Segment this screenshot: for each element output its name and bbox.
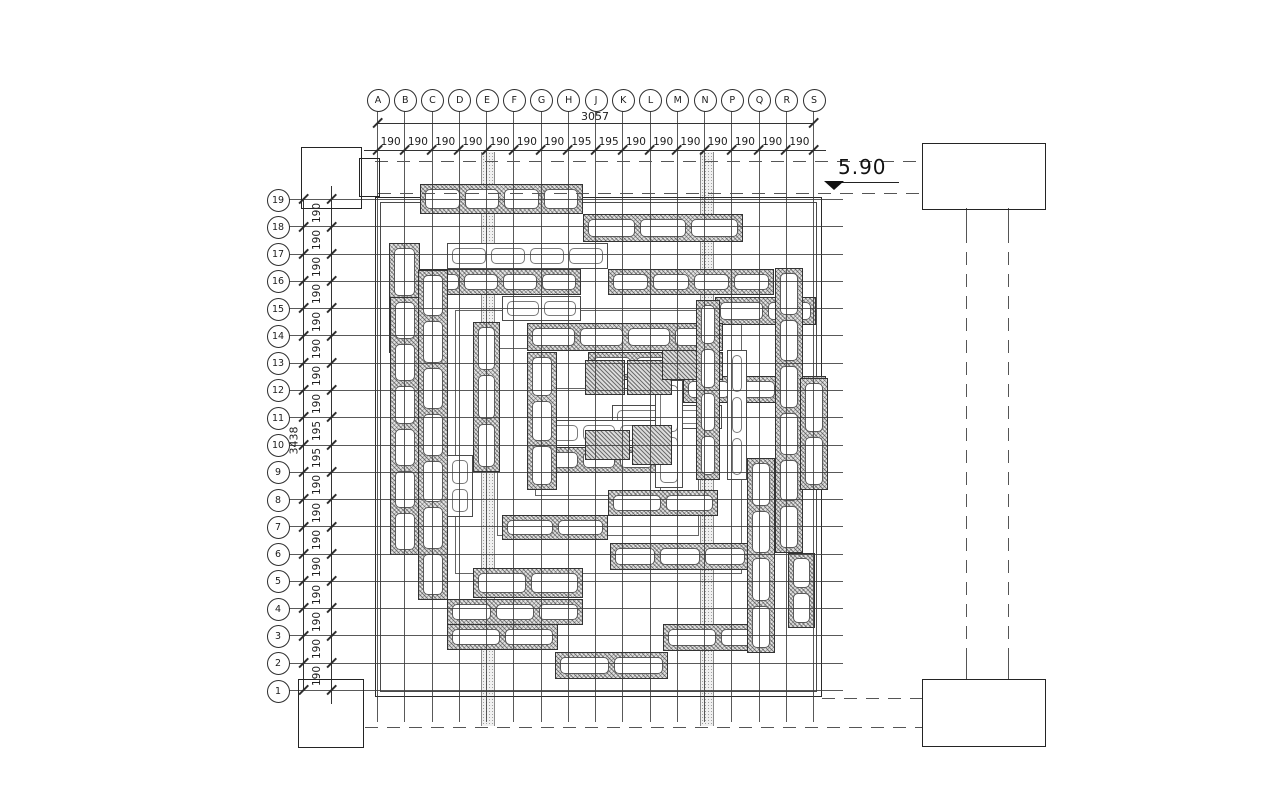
grid-line-3 <box>288 635 843 636</box>
stone-block <box>558 520 604 535</box>
stub-line-1 <box>1008 208 1009 232</box>
grid-bubble-left-19: 19 <box>267 189 290 212</box>
grid-bubble-top-R: R <box>775 89 798 112</box>
grid-line-15 <box>288 308 843 309</box>
dim-segment-left-12: 190 <box>311 525 323 555</box>
grid-line-Q <box>759 110 760 722</box>
stone-block <box>452 489 468 513</box>
grid-bubble-top-G: G <box>530 89 553 112</box>
grid-bubble-top-F: F <box>503 89 526 112</box>
masonry-strip-26 <box>527 352 557 490</box>
stone-block <box>613 495 661 511</box>
stone-block <box>542 274 576 290</box>
grid-line-B <box>404 110 405 722</box>
stone-block <box>539 604 578 620</box>
stone-block <box>720 302 763 320</box>
dim-segment-left-4: 190 <box>311 307 323 337</box>
masonry-strip-33 <box>788 553 815 628</box>
dim-segment-left-7: 190 <box>311 389 323 419</box>
grid-bubble-left-11: 11 <box>267 407 290 430</box>
stone-block <box>423 554 443 595</box>
stone-block <box>464 274 498 290</box>
masonry-strip-23 <box>418 270 448 600</box>
stone-block <box>423 507 443 548</box>
grid-bubble-left-8: 8 <box>267 489 290 512</box>
stone-block <box>530 248 564 264</box>
corner-column-bottom-left <box>298 679 364 748</box>
dim-segment-left-5: 190 <box>311 334 323 364</box>
grid-line-F <box>513 110 514 722</box>
corner-column-top-right <box>922 143 1046 210</box>
dim-segment-left-3: 190 <box>311 279 323 309</box>
grid-line-18 <box>288 226 843 227</box>
dim-segment-left-8: 195 <box>311 416 323 446</box>
stone-block <box>734 274 769 290</box>
grid-line-E <box>486 110 487 722</box>
grid-bubble-left-14: 14 <box>267 325 290 348</box>
grid-line-S <box>813 110 814 722</box>
grid-bubble-left-1: 1 <box>267 680 290 703</box>
stone-block <box>752 511 770 554</box>
grid-line-11 <box>288 417 843 418</box>
stone-block <box>491 248 525 264</box>
grid-bubble-top-B: B <box>394 89 417 112</box>
elevation-triangle-icon <box>824 181 844 190</box>
dim-segment-left-14: 190 <box>311 580 323 610</box>
grid-bubble-top-N: N <box>694 89 717 112</box>
grid-bubble-top-P: P <box>721 89 744 112</box>
grid-bubble-top-L: L <box>639 89 662 112</box>
grid-bubble-left-12: 12 <box>267 379 290 402</box>
elevation-value: 5.90 <box>838 155 887 179</box>
dim-segment-top-6: 190 <box>539 136 569 148</box>
grid-line-K <box>622 110 623 722</box>
grid-line-12 <box>288 390 843 391</box>
stone-block <box>793 558 810 588</box>
grid-bubble-top-D: D <box>448 89 471 112</box>
dim-segment-top-3: 190 <box>457 136 487 148</box>
grid-line-2 <box>288 663 843 664</box>
grid-line-19 <box>288 199 843 200</box>
stone-block <box>653 274 688 290</box>
grid-line-R <box>786 110 787 722</box>
dim-segment-top-9: 190 <box>621 136 651 148</box>
masonry-strip-4 <box>608 269 774 295</box>
dim-segment-left-2: 190 <box>311 252 323 282</box>
dim-segment-top-13: 190 <box>730 136 760 148</box>
grid-bubble-top-H: H <box>557 89 580 112</box>
dim-segment-left-13: 190 <box>311 552 323 582</box>
stone-block <box>732 397 742 434</box>
stone-block <box>503 274 537 290</box>
grid-line-10 <box>288 445 843 446</box>
stone-block <box>423 461 443 502</box>
masonry-strip-32 <box>800 378 828 490</box>
stone-block <box>780 320 798 362</box>
grid-line-L <box>650 110 651 722</box>
stone-block <box>752 558 770 601</box>
grid-line-13 <box>288 363 843 364</box>
dashed-line-2 <box>822 698 922 699</box>
grid-bubble-left-18: 18 <box>267 216 290 239</box>
masonry-strip-2 <box>447 243 608 269</box>
grid-line-9 <box>288 472 843 473</box>
dim-segment-top-7: 195 <box>566 136 596 148</box>
grid-bubble-top-M: M <box>666 89 689 112</box>
grid-line-J <box>595 110 596 722</box>
core-block-4 <box>662 350 697 380</box>
stone-block <box>752 606 770 649</box>
masonry-strip-7 <box>527 323 723 351</box>
grid-bubble-left-2: 2 <box>267 652 290 675</box>
stone-block <box>569 248 603 264</box>
grid-bubble-top-K: K <box>612 89 635 112</box>
dim-segment-top-15: 190 <box>784 136 814 148</box>
grid-bubble-left-10: 10 <box>267 434 290 457</box>
stub-line-0 <box>966 208 967 232</box>
stone-block <box>613 274 648 290</box>
dim-segment-left-10: 190 <box>311 470 323 500</box>
grid-bubble-top-S: S <box>803 89 826 112</box>
stone-block <box>780 413 798 455</box>
masonry-strip-16 <box>447 599 583 625</box>
stone-block <box>496 604 535 620</box>
masonry-strip-12 <box>608 490 718 516</box>
stone-block <box>532 401 552 440</box>
stone-block <box>532 446 552 485</box>
dim-segment-top-4: 190 <box>485 136 515 148</box>
dim-segment-top-8: 195 <box>594 136 624 148</box>
grid-line-7 <box>288 526 843 527</box>
masonry-strip-1 <box>583 214 743 242</box>
dim-segment-left-15: 190 <box>311 607 323 637</box>
dim-segment-left-16: 190 <box>311 634 323 664</box>
dashed-line-5 <box>1008 230 1009 660</box>
grid-bubble-left-16: 16 <box>267 270 290 293</box>
grid-bubble-top-E: E <box>476 89 499 112</box>
grid-bubble-top-J: J <box>585 89 608 112</box>
grid-line-H <box>568 110 569 722</box>
grid-bubble-left-5: 5 <box>267 570 290 593</box>
grid-bubble-top-Q: Q <box>748 89 771 112</box>
structural-plan-drawing: ABCDEFGHJKLMNPQRS19181716151413121110987… <box>0 0 1280 798</box>
grid-bubble-left-4: 4 <box>267 598 290 621</box>
masonry-strip-24 <box>447 455 473 517</box>
grid-bubble-left-7: 7 <box>267 516 290 539</box>
stone-block <box>666 495 714 511</box>
grid-bubble-left-9: 9 <box>267 461 290 484</box>
masonry-strip-19 <box>555 652 668 679</box>
dim-segment-top-10: 190 <box>648 136 678 148</box>
stone-block <box>452 248 486 264</box>
masonry-strip-15 <box>473 568 583 598</box>
grid-bubble-left-17: 17 <box>267 243 290 266</box>
stone-block <box>580 328 623 346</box>
grid-line-M <box>677 110 678 722</box>
stone-block <box>423 321 443 362</box>
masonry-strip-30 <box>747 458 775 653</box>
stone-block <box>423 368 443 409</box>
grid-line-P <box>731 110 732 722</box>
grid-line-14 <box>288 335 843 336</box>
stone-block <box>640 219 687 237</box>
stone-block <box>423 414 443 455</box>
grid-line-D <box>459 110 460 722</box>
dashed-line-4 <box>966 230 967 660</box>
stone-block <box>780 460 798 502</box>
grid-bubble-left-13: 13 <box>267 352 290 375</box>
stone-block <box>660 548 700 565</box>
dim-segment-top-5: 190 <box>512 136 542 148</box>
grid-line-4 <box>288 608 843 609</box>
stub-line-3 <box>1008 657 1009 679</box>
masonry-strip-29 <box>727 350 747 480</box>
grid-bubble-left-3: 3 <box>267 625 290 648</box>
grid-bubble-top-A: A <box>367 89 390 112</box>
masonry-strip-13 <box>502 515 608 540</box>
grid-bubble-left-6: 6 <box>267 543 290 566</box>
top-total-dimension: 3057 <box>565 110 625 123</box>
stone-block <box>705 548 745 565</box>
grid-line-1 <box>288 690 843 691</box>
dim-segment-top-12: 190 <box>703 136 733 148</box>
stone-block <box>668 629 716 646</box>
dashed-line-3 <box>365 727 922 728</box>
dim-segment-top-0: 190 <box>376 136 406 148</box>
stub-line-2 <box>966 657 967 679</box>
dashed-line-1 <box>378 193 922 194</box>
masonry-strip-31 <box>775 268 803 553</box>
grid-line-N <box>704 110 705 722</box>
stone-block <box>505 629 553 645</box>
stone-block <box>531 573 579 593</box>
grid-bubble-left-15: 15 <box>267 298 290 321</box>
dim-segment-top-11: 190 <box>675 136 705 148</box>
grid-line-G <box>541 110 542 722</box>
dim-segment-left-9: 195 <box>311 443 323 473</box>
grid-line-8 <box>288 499 843 500</box>
dim-segment-top-2: 190 <box>430 136 460 148</box>
grid-line-16 <box>288 281 843 282</box>
dim-segment-top-14: 190 <box>757 136 787 148</box>
dim-segment-left-11: 190 <box>311 498 323 528</box>
grid-bubble-top-C: C <box>421 89 444 112</box>
dim-segment-left-1: 190 <box>311 225 323 255</box>
grid-line-A <box>377 110 378 722</box>
corner-column-top-left <box>301 147 362 209</box>
corner-column-bottom-right <box>922 679 1046 747</box>
stone-block <box>694 274 729 290</box>
grid-line-17 <box>288 254 843 255</box>
grid-line-6 <box>288 554 843 555</box>
corner-column-top-left-tab <box>359 158 380 197</box>
grid-line-5 <box>288 581 843 582</box>
stone-block <box>780 366 798 408</box>
top-overall-dim-line <box>377 123 813 124</box>
stone-block <box>732 355 742 392</box>
masonry-strip-14 <box>610 543 750 570</box>
dim-segment-left-6: 190 <box>311 361 323 391</box>
grid-line-C <box>432 110 433 722</box>
dim-segment-top-1: 190 <box>403 136 433 148</box>
